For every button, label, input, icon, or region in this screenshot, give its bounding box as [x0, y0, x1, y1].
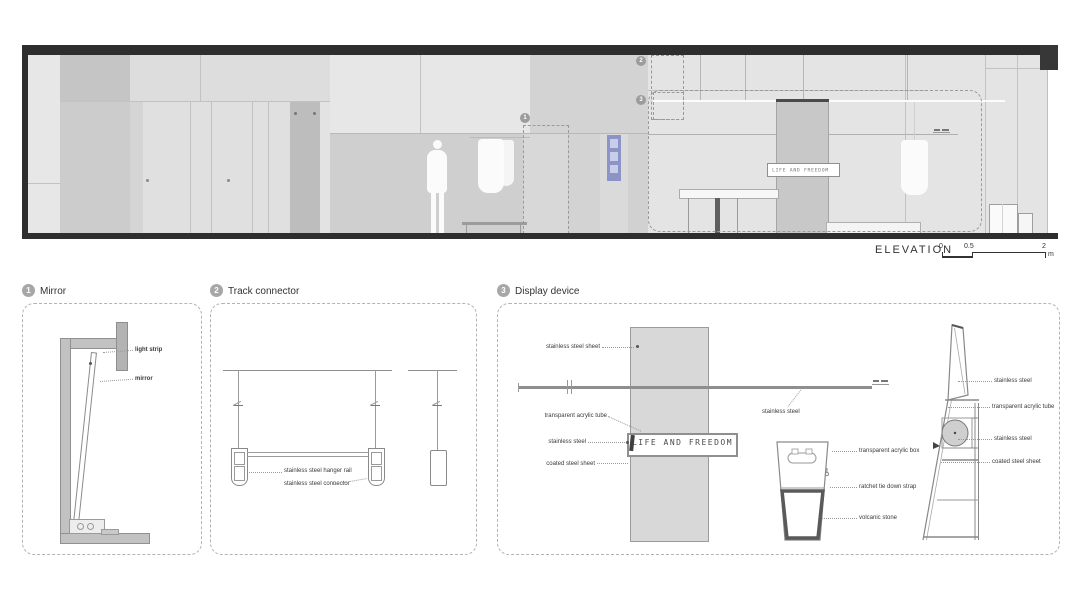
display-device-side [915, 315, 1010, 550]
wall-panel [330, 55, 530, 133]
door-panels [143, 101, 312, 233]
frame-corner-block [1040, 45, 1058, 70]
light-strip-pendant [116, 322, 128, 371]
base-roller [77, 523, 84, 530]
panel-1-number: 1 [22, 284, 35, 297]
panel-1-title: Mirror [40, 286, 66, 297]
callout-number-1: 1 [520, 113, 530, 123]
hanging-garment [499, 140, 514, 186]
callout-box-display [648, 90, 982, 232]
wall-panel [60, 55, 130, 101]
scale-tick-05: 0.5 [964, 243, 974, 250]
wall-panel [60, 101, 130, 233]
micro-note [881, 380, 888, 382]
hanger-rod [375, 370, 376, 450]
callout-number-2: 2 [636, 56, 646, 66]
label-side-stainless-steel-top: stainless steel [994, 378, 1032, 385]
panel-2-number: 2 [210, 284, 223, 297]
brand-sign-detail-text: LIFE AND FREEDOM [629, 435, 736, 451]
mirror-foot-bracket [101, 529, 119, 535]
label-side-stainless-steel-mid: stainless steel [994, 436, 1032, 443]
door-handle [146, 179, 149, 182]
callout-box-mirror [523, 125, 569, 234]
bench [462, 222, 527, 225]
wall-panel [130, 55, 330, 101]
micro-note [873, 380, 879, 382]
wall-panel [130, 101, 143, 233]
wall-panel [27, 55, 60, 233]
cabinet [989, 204, 1018, 235]
label-ratchet-strap: ratchet tie down strap [859, 484, 916, 491]
brand-sign-detail: LIFE AND FREEDOM [627, 433, 738, 457]
door-handle [227, 179, 230, 182]
hanger-rod [437, 370, 438, 450]
base-roller [87, 523, 94, 530]
label-rod-stainless-steel: stainless steel [762, 409, 800, 416]
display-stand-front [768, 435, 838, 545]
panel-3-title: Display device [515, 286, 579, 297]
ceiling-line [408, 370, 457, 371]
connector-detail [371, 452, 382, 465]
label-side-coated-steel: coated steel sheet [992, 459, 1041, 466]
label-acrylic-box: transparent acrylic box [859, 448, 919, 455]
connector-detail [234, 466, 245, 481]
wall-panel [568, 134, 600, 233]
frame-floor [22, 233, 1058, 239]
label-stainless-steel: stainless steel [533, 439, 586, 446]
label-volcanic-stone: volcanic stone [859, 515, 897, 522]
hanger-rail [247, 452, 368, 457]
callout-number-3: 3 [636, 95, 646, 105]
architectural-drawing-sheet: LIFE AND FREEDOM 1 2 3 ELEVATION [0, 0, 1080, 600]
frame-left [22, 45, 28, 239]
wall-panel [628, 134, 648, 233]
label-acrylic-tube: transparent acrylic tube [527, 413, 607, 420]
door-handle [313, 112, 316, 115]
frame-right-opening [1047, 70, 1059, 233]
label-steel-sheet: stainless steel sheet [533, 344, 600, 351]
scale-tick-0: 0 [939, 243, 943, 250]
small-box [1018, 213, 1033, 235]
connector-side-view [430, 450, 447, 486]
fitting-room-sign [607, 135, 621, 181]
connector-detail [371, 466, 382, 481]
wall-section-vertical [60, 338, 71, 541]
connector-detail [234, 452, 245, 465]
label-mirror: mirror [135, 376, 153, 383]
dark-door-panel [290, 101, 320, 233]
ceiling-line [223, 370, 392, 371]
hanger-rod [238, 370, 239, 450]
label-hanger-rail: stainless steel hanger rail [284, 468, 352, 475]
panel-3-number: 3 [497, 284, 510, 297]
frame-top [22, 45, 1058, 55]
label-light-strip: light strip [135, 347, 162, 354]
label-coated-steel: coated steel sheet [533, 461, 595, 468]
scale-tick-2: 2 [1042, 243, 1046, 250]
scale-unit: m [1048, 251, 1054, 258]
panel-2-title: Track connector [228, 286, 299, 297]
label-side-acrylic-tube: transparent acrylic tube [992, 404, 1054, 411]
door-handle [294, 112, 297, 115]
elevation-drawing: LIFE AND FREEDOM 1 2 3 [22, 45, 1058, 239]
